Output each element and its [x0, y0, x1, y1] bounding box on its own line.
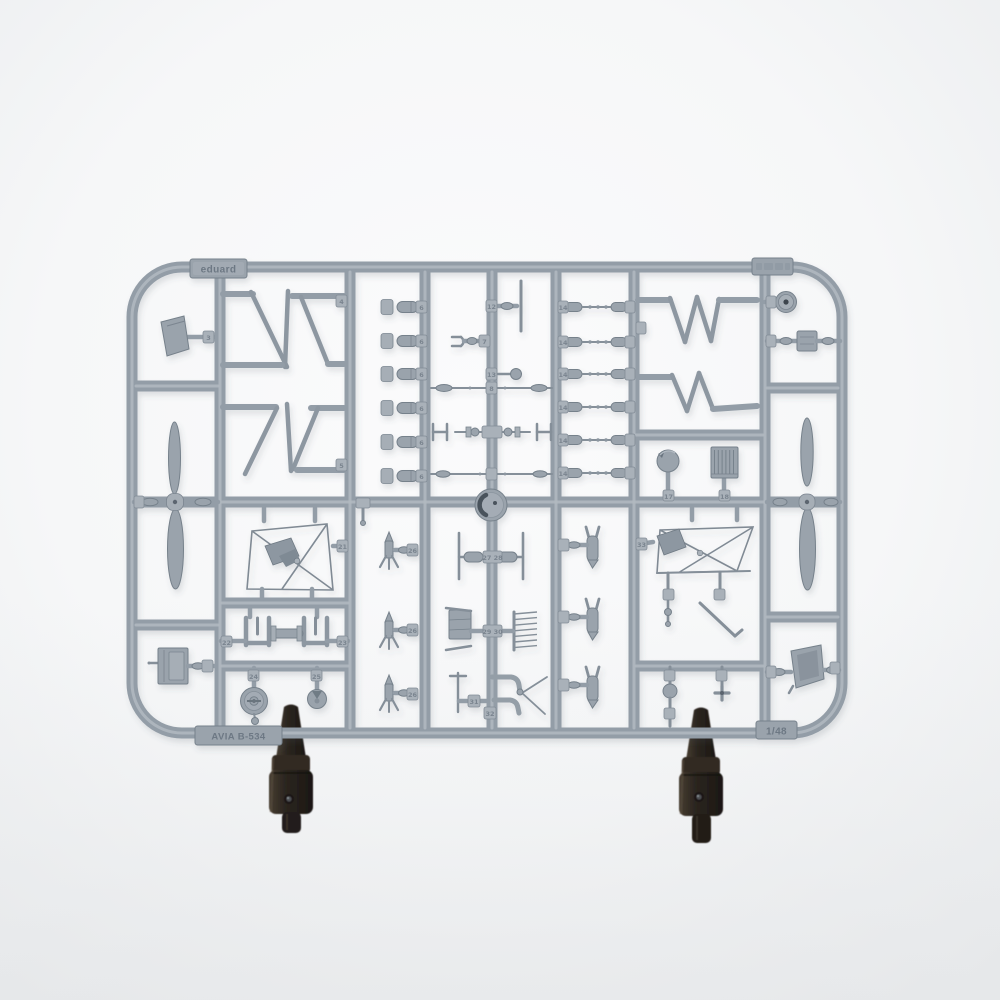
part-number: 6 [419, 439, 424, 447]
propeller-blade [801, 418, 813, 486]
photo-stage: 3 4 5 6 6 6 6 6 6 12 7 13 8 14 14 14 14 … [0, 0, 1000, 1000]
part-number: 18 [720, 493, 730, 501]
brand-molded-text: eduard [201, 265, 237, 276]
part-number: 29 30 [482, 628, 503, 636]
part-number: 3 [206, 334, 211, 342]
part-number: 7 [482, 338, 487, 346]
part-number: 6 [419, 371, 424, 379]
molded-code-tab [752, 258, 793, 275]
clamp-rod [692, 814, 711, 843]
clamp-screw [286, 796, 291, 801]
kit-name-tab: AVIA B-534 [195, 726, 282, 745]
clamp-screw-glint [287, 797, 289, 799]
part-number: 6 [419, 338, 424, 346]
scale-tab: 1/48 [756, 721, 797, 739]
part-number: 8 [489, 385, 494, 393]
part-number: 14 [558, 404, 568, 412]
part-number: 17 [664, 493, 673, 501]
part-number: 26 [408, 627, 418, 635]
part-number: 13 [487, 371, 496, 379]
clamp-body [269, 770, 313, 814]
part-number: 12 [487, 303, 496, 311]
part-cowl-ring-centre [475, 489, 507, 521]
propeller-blade [169, 422, 181, 494]
part-number: 31 [469, 698, 479, 706]
kit-name-molded-text: AVIA B-534 [211, 732, 265, 743]
part-number: 26 [408, 691, 418, 699]
part-number: 6 [419, 473, 424, 481]
part-number: 5 [339, 462, 344, 470]
clamp-screw [696, 794, 701, 799]
part-number: 21 [338, 543, 348, 551]
propeller-blade [800, 508, 816, 590]
part-number: 24 [249, 673, 259, 681]
part-number: 26 [408, 547, 418, 555]
part-number: 14 [558, 437, 568, 445]
part-number: 33 [637, 541, 646, 549]
part-number: 32 [485, 710, 494, 718]
clamp-screw-glint [697, 795, 699, 797]
part-number: 25 [312, 673, 322, 681]
propeller-blade [168, 509, 184, 589]
part-number: 14 [558, 339, 568, 347]
part-number: 6 [419, 304, 424, 312]
clamp-rod [282, 812, 301, 833]
part-number: 14 [558, 371, 568, 379]
part-number: 22 [222, 639, 231, 647]
part-number: 14 [558, 470, 568, 478]
sprue-photo: 3 4 5 6 6 6 6 6 6 12 7 13 8 14 14 14 14 … [0, 0, 1000, 1000]
brand-tab: eduard [190, 259, 247, 278]
part-number: 6 [419, 405, 424, 413]
part-number: 23 [338, 639, 347, 647]
part-number: 14 [558, 304, 568, 312]
scale-molded-text: 1/48 [766, 727, 787, 738]
part-number: 27 28 [482, 554, 503, 562]
part-number: 4 [339, 298, 344, 306]
